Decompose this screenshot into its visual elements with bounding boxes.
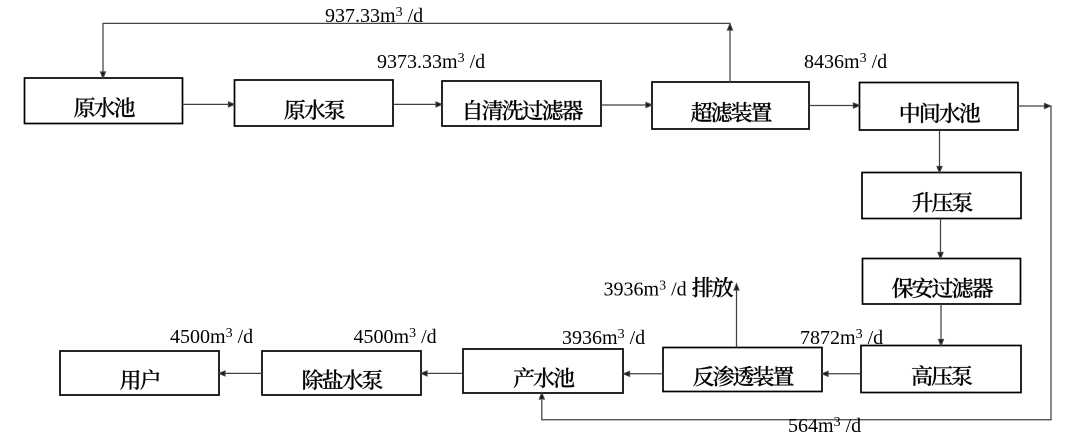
- svg-text:937.33m3 /d: 937.33m3 /d: [325, 5, 423, 27]
- svg-text:9373.33m3 /d: 9373.33m3 /d: [377, 51, 485, 73]
- svg-text:7872m3 /d: 7872m3 /d: [800, 327, 883, 349]
- svg-text:8436m3 /d: 8436m3 /d: [804, 51, 887, 73]
- svg-text:4500m3 /d: 4500m3 /d: [170, 326, 253, 348]
- svg-text:3936m3 /d: 3936m3 /d: [604, 279, 687, 301]
- svg-text:4500m3 /d: 4500m3 /d: [354, 326, 437, 348]
- svg-text:3936m3 /d: 3936m3 /d: [562, 327, 645, 349]
- svg-text:564m3 /d: 564m3 /d: [788, 415, 861, 437]
